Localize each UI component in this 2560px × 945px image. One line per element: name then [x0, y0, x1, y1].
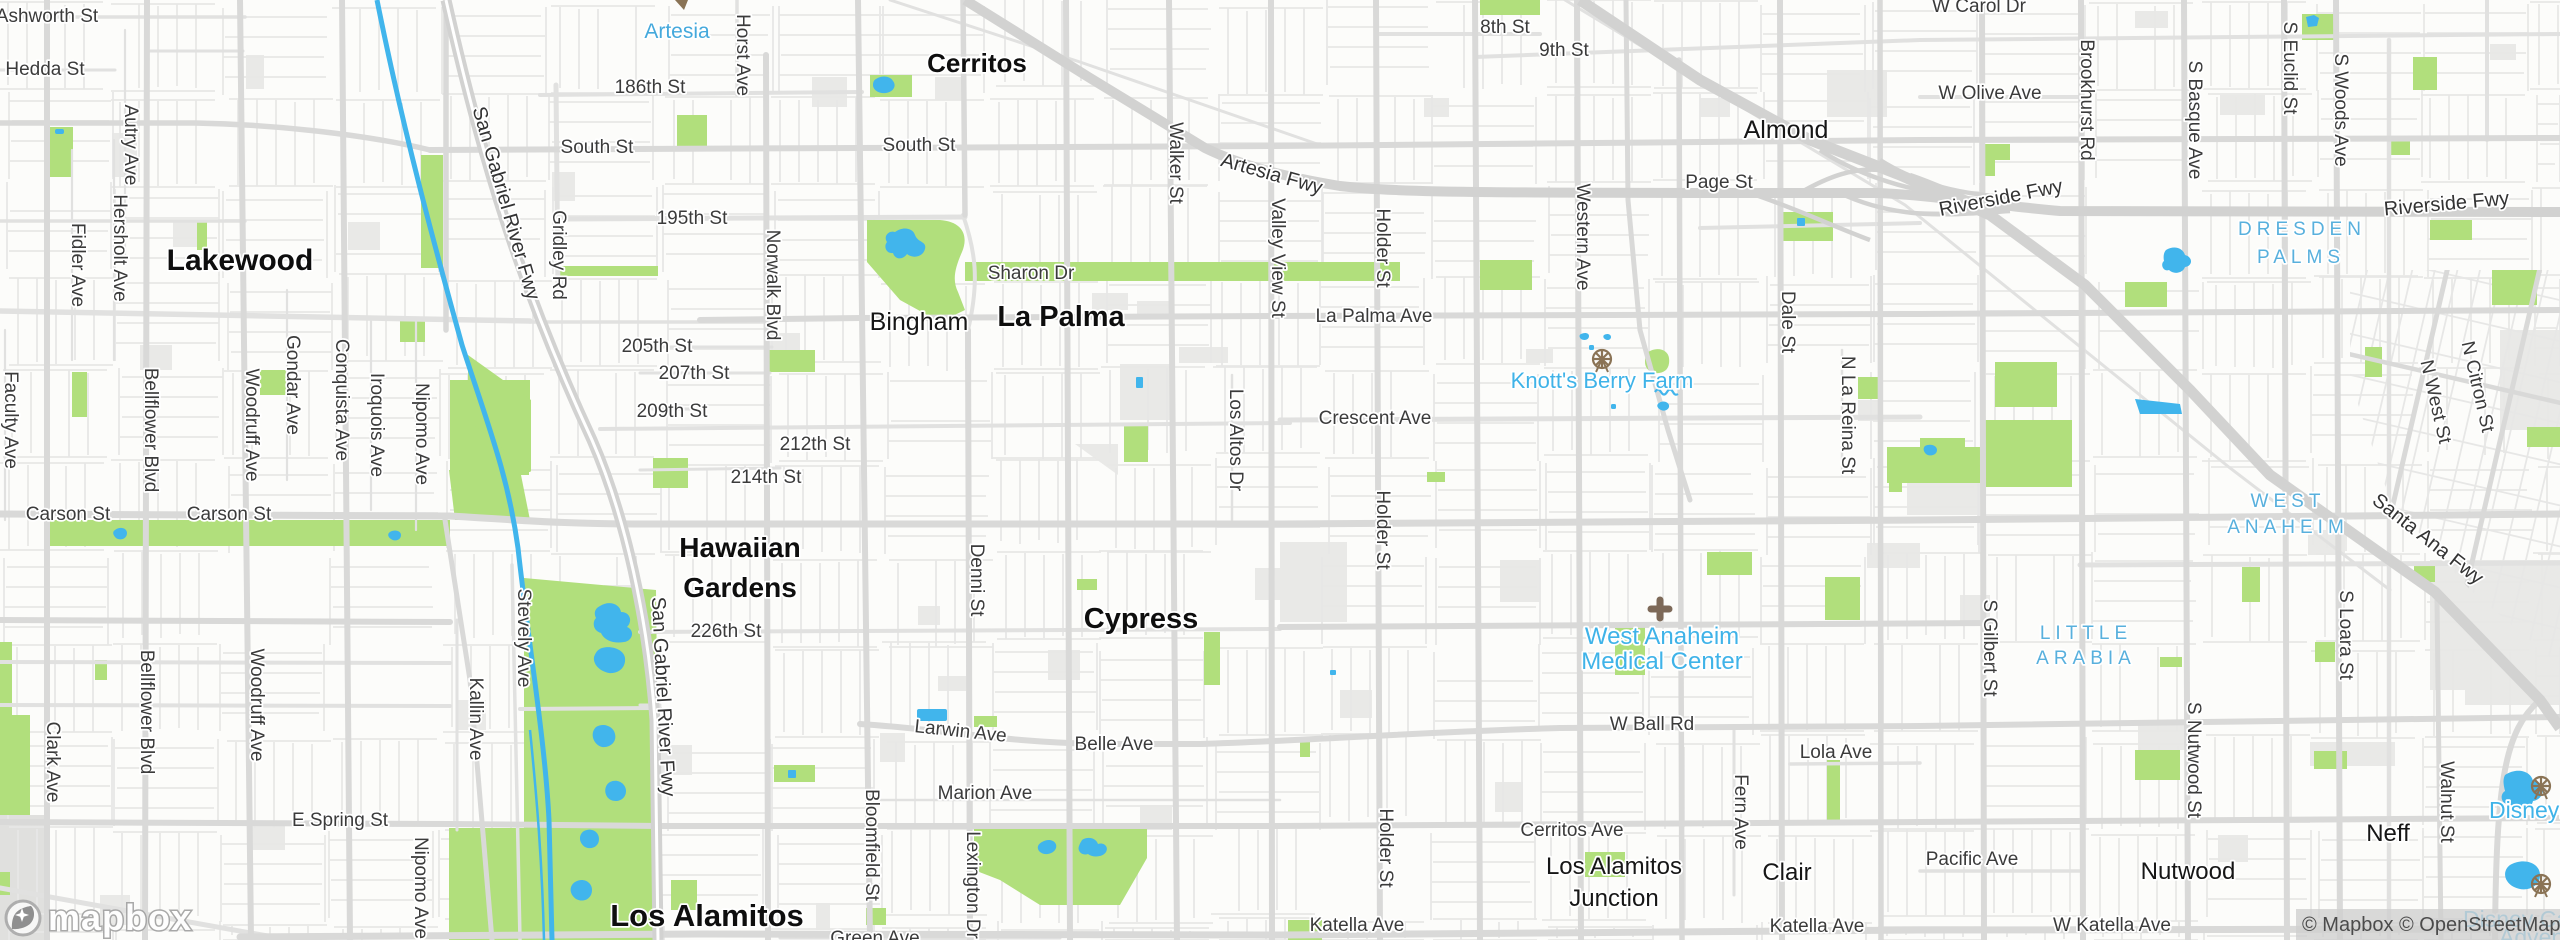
svg-text:Artesia: Artesia — [644, 20, 710, 43]
svg-text:Knott's Berry Farm: Knott's Berry Farm — [1511, 368, 1694, 393]
svg-text:Los Altos Dr: Los Altos Dr — [1225, 389, 1246, 492]
svg-text:205th St: 205th St — [622, 336, 693, 357]
svg-text:8th St: 8th St — [1480, 17, 1530, 38]
svg-text:South St: South St — [883, 135, 957, 156]
svg-text:Bloomfield St: Bloomfield St — [861, 789, 882, 902]
svg-text:Disneyla: Disneyla — [2489, 797, 2560, 823]
svg-text:212th St: 212th St — [780, 434, 851, 455]
svg-text:Sharon Dr: Sharon Dr — [988, 263, 1075, 284]
svg-text:226th St: 226th St — [691, 621, 762, 642]
svg-text:Lexington Dr: Lexington Dr — [962, 831, 983, 939]
svg-text:Clark Ave: Clark Ave — [42, 722, 63, 803]
svg-text:Page St: Page St — [1685, 172, 1753, 193]
svg-text:Lola Ave: Lola Ave — [1800, 742, 1873, 763]
svg-text:Nipomo Ave: Nipomo Ave — [410, 837, 431, 939]
svg-text:Fern Ave: Fern Ave — [1730, 774, 1751, 850]
svg-text:Nutwood: Nutwood — [2141, 858, 2236, 885]
svg-text:West Anaheim: West Anaheim — [1585, 623, 1739, 650]
svg-text:Carson St: Carson St — [187, 504, 272, 525]
svg-text:Medical Center: Medical Center — [1581, 648, 1742, 675]
svg-text:195th St: 195th St — [657, 208, 728, 229]
svg-text:S Nutwood St: S Nutwood St — [2183, 702, 2204, 819]
svg-text:Valley View St: Valley View St — [1267, 198, 1288, 318]
svg-text:Horst Ave: Horst Ave — [732, 14, 753, 96]
svg-text:Katella Ave: Katella Ave — [1310, 915, 1405, 936]
svg-text:Holder St: Holder St — [1372, 208, 1393, 288]
svg-text:Clair: Clair — [1762, 859, 1811, 886]
svg-text:Pacific Ave: Pacific Ave — [1926, 849, 2019, 870]
svg-text:PALMS: PALMS — [2257, 247, 2345, 268]
svg-text:Stevely Ave: Stevely Ave — [513, 589, 534, 688]
svg-text:Gondar Ave: Gondar Ave — [282, 335, 303, 435]
svg-text:Crescent Ave: Crescent Ave — [1319, 408, 1432, 429]
svg-text:S Woods Ave: S Woods Ave — [2330, 53, 2351, 166]
svg-text:W Katella Ave: W Katella Ave — [2053, 915, 2171, 936]
svg-text:Hedda St: Hedda St — [5, 59, 85, 80]
svg-text:Gridley Rd: Gridley Rd — [548, 210, 569, 300]
svg-text:S Basque Ave: S Basque Ave — [2184, 60, 2205, 179]
svg-text:Ashworth St: Ashworth St — [0, 6, 99, 27]
svg-text:214th St: 214th St — [731, 467, 802, 488]
svg-text:Bingham: Bingham — [870, 308, 969, 336]
svg-text:Gardens: Gardens — [683, 572, 797, 603]
svg-text:207th St: 207th St — [659, 363, 730, 384]
svg-text:ARABIA: ARABIA — [2036, 648, 2136, 669]
svg-text:W Ball Rd: W Ball Rd — [1610, 714, 1694, 735]
svg-text:Almond: Almond — [1744, 116, 1829, 144]
svg-text:Kallin Ave: Kallin Ave — [465, 677, 486, 760]
svg-text:Los Alamitos: Los Alamitos — [610, 898, 804, 933]
svg-text:South St: South St — [561, 137, 635, 158]
svg-text:S Euclid St: S Euclid St — [2279, 22, 2300, 116]
svg-text:Norwalk Blvd: Norwalk Blvd — [762, 230, 783, 341]
svg-text:Holder St: Holder St — [1375, 808, 1396, 888]
svg-text:Dale St: Dale St — [1777, 291, 1798, 354]
svg-text:mapbox: mapbox — [48, 897, 192, 938]
svg-text:S Gilbert St: S Gilbert St — [1979, 599, 2000, 697]
svg-text:Faculty Ave: Faculty Ave — [0, 371, 21, 469]
svg-text:Junction: Junction — [1569, 885, 1658, 912]
svg-text:ANAHEIM: ANAHEIM — [2227, 517, 2349, 538]
svg-text:Cerritos Ave: Cerritos Ave — [1520, 820, 1623, 841]
svg-text:Lakewood: Lakewood — [167, 244, 314, 277]
svg-text:Green Ave: Green Ave — [830, 928, 919, 940]
svg-text:Los Alamitos: Los Alamitos — [1546, 853, 1682, 880]
svg-text:Western Ave: Western Ave — [1572, 183, 1593, 290]
svg-text:Carson St: Carson St — [26, 504, 111, 525]
svg-text:Walnut St: Walnut St — [2436, 761, 2457, 843]
svg-text:La Palma Ave: La Palma Ave — [1316, 306, 1433, 327]
svg-text:Autry Ave: Autry Ave — [120, 105, 141, 186]
svg-text:Woodruff Ave: Woodruff Ave — [241, 368, 262, 481]
svg-text:Marion Ave: Marion Ave — [938, 783, 1033, 804]
svg-text:Hersholt Ave: Hersholt Ave — [109, 194, 130, 301]
svg-text:Woodruff Ave: Woodruff Ave — [246, 648, 267, 761]
svg-text:209th St: 209th St — [637, 401, 708, 422]
svg-text:W Carol Dr: W Carol Dr — [1932, 0, 2027, 17]
svg-text:Cerritos: Cerritos — [927, 48, 1027, 78]
svg-text:Katella Ave: Katella Ave — [1770, 916, 1865, 937]
svg-text:Fidler Ave: Fidler Ave — [67, 223, 88, 307]
svg-text:W Olive Ave: W Olive Ave — [1938, 83, 2041, 104]
svg-text:Nipomo Ave: Nipomo Ave — [411, 383, 432, 485]
svg-text:186th St: 186th St — [615, 77, 686, 98]
svg-text:N La Reina St: N La Reina St — [1837, 356, 1858, 475]
svg-text:Belle Ave: Belle Ave — [1075, 734, 1154, 755]
svg-text:9th St: 9th St — [1539, 40, 1589, 61]
svg-text:Iroquois Ave: Iroquois Ave — [366, 373, 387, 477]
svg-text:Cypress: Cypress — [1084, 603, 1198, 635]
svg-text:Denni St: Denni St — [966, 544, 987, 618]
svg-text:E Spring St: E Spring St — [292, 810, 389, 831]
svg-text:DRESDEN: DRESDEN — [2238, 219, 2366, 240]
svg-text:Hawaiian: Hawaiian — [679, 532, 800, 563]
svg-text:Bellflower Blvd: Bellflower Blvd — [140, 368, 161, 493]
svg-text:Bellflower Blvd: Bellflower Blvd — [136, 650, 157, 775]
svg-text:LITTLE: LITTLE — [2040, 623, 2132, 644]
svg-text:© Mapbox © OpenStreetMap: © Mapbox © OpenStreetMap — [2302, 914, 2560, 936]
svg-text:WEST: WEST — [2251, 491, 2326, 512]
svg-text:Holder St: Holder St — [1372, 490, 1393, 570]
svg-text:Walker St: Walker St — [1165, 122, 1186, 204]
svg-text:Brookhurst Rd: Brookhurst Rd — [2076, 39, 2097, 160]
svg-text:La Palma: La Palma — [997, 301, 1125, 333]
svg-text:Conquista Ave: Conquista Ave — [331, 339, 352, 461]
svg-text:Neff: Neff — [2366, 820, 2410, 847]
svg-text:S Loara St: S Loara St — [2335, 590, 2356, 680]
